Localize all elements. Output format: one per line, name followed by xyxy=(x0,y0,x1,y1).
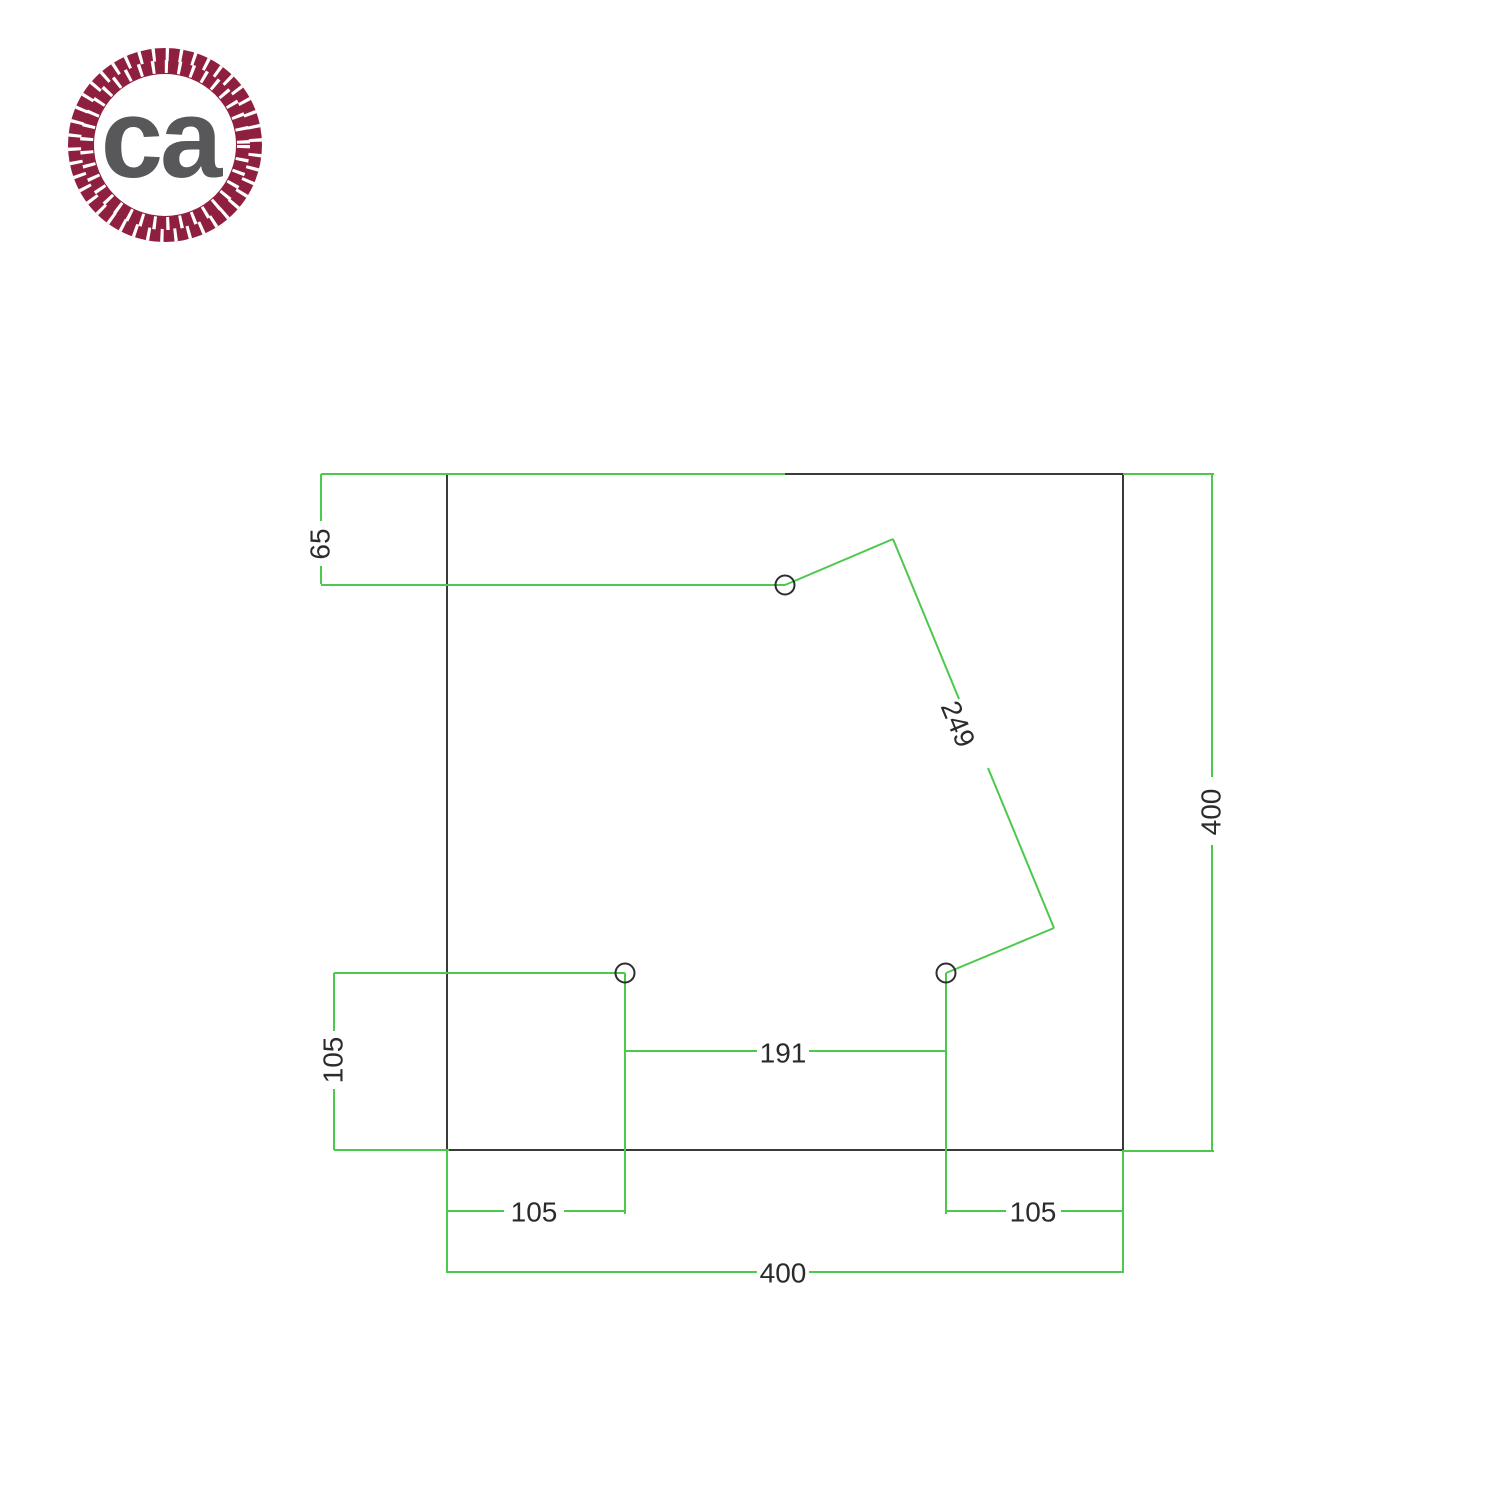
dimension-left-height: 105 xyxy=(318,973,626,1150)
dim-label-bottom-right: 105 xyxy=(1010,1197,1057,1228)
dim-label-left-height: 105 xyxy=(318,1037,349,1084)
hole-markers xyxy=(616,576,956,983)
dimension-diagonal-span: 249 xyxy=(785,539,1054,973)
dim-label-top-offset: 65 xyxy=(305,528,336,559)
logo-monogram: ca xyxy=(101,76,223,201)
dimension-holes-spacing: 191 xyxy=(625,973,946,1214)
dimension-total-height: 400 xyxy=(1123,474,1227,1151)
dim-label-bottom-left: 105 xyxy=(511,1197,558,1228)
dimension-bottom-right: 105 xyxy=(946,1197,1123,1228)
dim-label-total-width: 400 xyxy=(760,1258,807,1289)
product-technical-drawing: ca 65 249 105 xyxy=(0,0,1500,1500)
dimension-top-offset: 65 xyxy=(305,474,786,585)
dim-label-diagonal-span: 249 xyxy=(935,696,982,751)
dim-label-total-height: 400 xyxy=(1196,789,1227,836)
drawing-svg: ca 65 249 105 xyxy=(0,0,1500,1500)
dim-label-holes-spacing: 191 xyxy=(760,1038,807,1069)
brand-logo: ca xyxy=(75,55,256,236)
dimension-bottom-left: 105 xyxy=(447,1197,625,1228)
